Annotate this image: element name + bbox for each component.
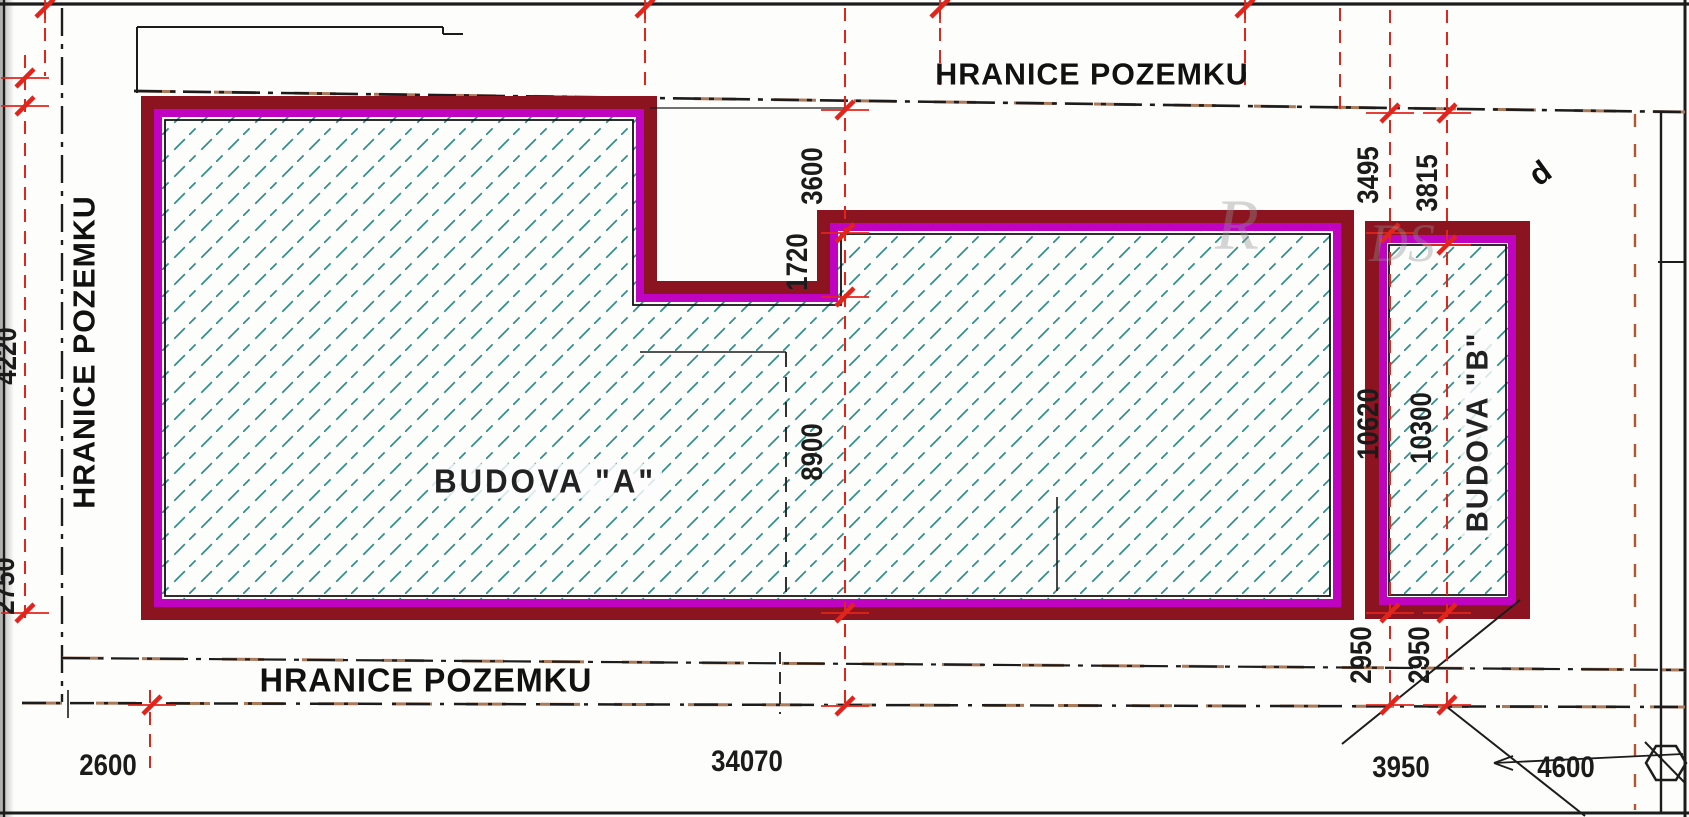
dimension-label-3950: 3950: [1372, 753, 1429, 783]
building-a-outline: [148, 103, 1347, 613]
dimension-label-left-bottom-clipped: 2750: [0, 557, 20, 614]
dimension-label-10620: 10620: [1354, 388, 1384, 460]
watermark-letter: R: [1215, 184, 1259, 267]
dimension-label-4600: 4600: [1537, 753, 1594, 783]
watermark-letters: DS: [1369, 212, 1435, 274]
construction-lines-top-left: [137, 27, 463, 93]
building-a-label: BUDOVA "A": [428, 464, 661, 499]
dimension-label-2950-b: 2950: [1405, 626, 1435, 683]
dimension-label-2950-a: 2950: [1347, 626, 1377, 683]
dimension-label-8900: 8900: [798, 423, 828, 480]
site-plan: R DS HRANICE POZEMKU HRANICE POZEMKU HRA…: [0, 0, 1689, 817]
dimension-label-10300: 10300: [1407, 392, 1437, 464]
dimension-label-3600: 3600: [798, 147, 828, 204]
dimension-label-left-top-clipped: 4220: [0, 327, 22, 384]
boundary-label-bottom: HRANICE POZEMKU: [260, 664, 593, 697]
dimension-label-2600: 2600: [79, 751, 136, 781]
boundary-label-left: HRANICE POZEMKU: [69, 195, 100, 508]
dimension-label-3815: 3815: [1413, 154, 1443, 211]
building-b-label: BUDOVA "B": [1461, 327, 1494, 537]
dimension-label-1720: 1720: [783, 233, 813, 290]
dimension-label-3495: 3495: [1354, 146, 1384, 203]
dimension-label-34070: 34070: [711, 747, 783, 777]
boundary-label-top: HRANICE POZEMKU: [935, 59, 1248, 90]
